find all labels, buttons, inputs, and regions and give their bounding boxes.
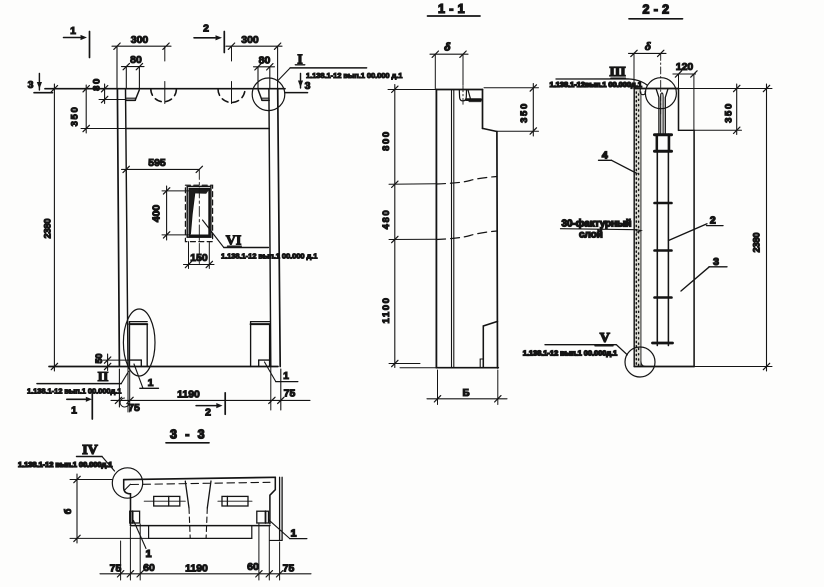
- svg-text:2: 2: [203, 23, 209, 35]
- svg-text:480: 480: [381, 209, 392, 230]
- svg-text:IV: IV: [82, 443, 98, 458]
- svg-text:595: 595: [148, 157, 166, 169]
- svg-text:75: 75: [110, 563, 122, 575]
- svg-text:150: 150: [190, 252, 208, 264]
- svg-text:75: 75: [283, 563, 295, 575]
- svg-text:3: 3: [305, 80, 311, 92]
- svg-text:1.138.1-12 вып.1 00.000 д.1: 1.138.1-12 вып.1 00.000 д.1: [221, 251, 318, 260]
- svg-text:слой: слой: [579, 230, 603, 241]
- svg-text:3: 3: [713, 256, 719, 268]
- svg-text:1.138.1-12 вып.1 00.000д.1: 1.138.1-12 вып.1 00.000д.1: [18, 460, 113, 469]
- svg-text:1: 1: [283, 370, 289, 382]
- svg-text:Б: Б: [462, 388, 469, 399]
- svg-text:120: 120: [676, 61, 694, 73]
- svg-text:2380: 2380: [752, 232, 762, 252]
- svg-text:60: 60: [143, 562, 155, 574]
- svg-text:1.138.1-12вып.1 00.000д.1: 1.138.1-12вып.1 00.000д.1: [550, 80, 643, 89]
- svg-text:1.138.1-12 вып.1 00.000д.1: 1.138.1-12 вып.1 00.000д.1: [523, 348, 618, 357]
- svg-text:80: 80: [259, 54, 271, 66]
- svg-text:4: 4: [602, 149, 608, 161]
- svg-text:1100: 1100: [381, 296, 392, 323]
- svg-text:30-фактурный: 30-фактурный: [562, 217, 632, 229]
- svg-text:б: б: [63, 508, 73, 514]
- svg-text:2 - 2: 2 - 2: [642, 3, 669, 17]
- svg-text:1190: 1190: [185, 563, 208, 575]
- svg-text:50: 50: [94, 353, 104, 363]
- svg-text:1: 1: [71, 405, 77, 417]
- svg-text:V: V: [600, 331, 610, 346]
- svg-text:1: 1: [146, 548, 152, 560]
- svg-text:1.138.1-12 вып.1 00.000д.1: 1.138.1-12 вып.1 00.000д.1: [27, 386, 122, 395]
- svg-text:δ: δ: [645, 39, 651, 53]
- svg-text:1: 1: [70, 25, 76, 37]
- svg-text:350: 350: [70, 106, 81, 127]
- svg-text:3: 3: [28, 79, 34, 91]
- svg-text:II: II: [98, 370, 109, 385]
- svg-text:3 - 3: 3 - 3: [170, 428, 207, 442]
- svg-text:80: 80: [92, 77, 103, 91]
- svg-text:2: 2: [710, 215, 716, 227]
- svg-text:80: 80: [130, 54, 142, 66]
- svg-text:1 - 1: 1 - 1: [438, 2, 465, 16]
- svg-text:300: 300: [131, 34, 149, 46]
- svg-text:60: 60: [247, 561, 259, 573]
- svg-text:2380: 2380: [43, 218, 53, 238]
- svg-text:2: 2: [205, 407, 211, 419]
- svg-text:800: 800: [381, 130, 392, 151]
- svg-text:75: 75: [284, 387, 296, 399]
- svg-text:300: 300: [241, 34, 259, 46]
- svg-text:1: 1: [291, 528, 297, 540]
- svg-text:350: 350: [724, 102, 735, 123]
- svg-text:1: 1: [148, 377, 154, 389]
- svg-text:400: 400: [151, 205, 163, 223]
- svg-text:75: 75: [128, 402, 140, 414]
- svg-text:δ: δ: [444, 40, 450, 54]
- svg-text:350: 350: [519, 102, 530, 123]
- svg-text:1190: 1190: [177, 388, 200, 400]
- svg-text:1.138.1-12 вып.1 00.000 д.1: 1.138.1-12 вып.1 00.000 д.1: [306, 71, 403, 80]
